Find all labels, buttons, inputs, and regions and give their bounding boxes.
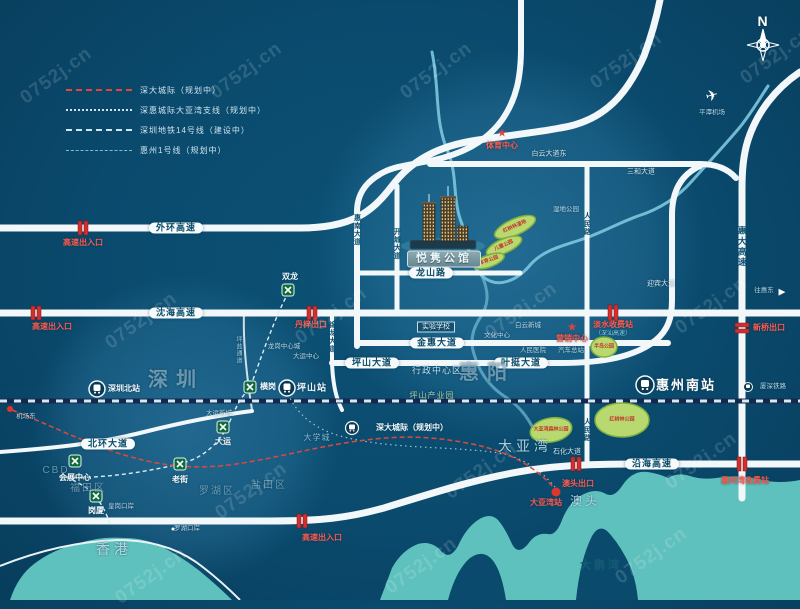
legend-label: 深大城际（规划中）: [140, 85, 221, 96]
star-icon-marketing-center: ★: [567, 323, 577, 334]
convention-center-label: 会展中心: [59, 474, 91, 482]
gangxia-label: 岗厦: [88, 507, 104, 515]
baiyun-ave-east-label: 白云大道东: [532, 151, 567, 158]
laojie-label: 老街: [172, 476, 188, 484]
bus-terminal-label: 汽车总站: [558, 348, 584, 355]
legend-row-huizhou-line1: 惠州1号线（规划中）: [66, 140, 266, 160]
jinhui-ave-label: 金惠大道: [410, 338, 464, 349]
xinqiao-exit-label: 新桥出口: [753, 324, 785, 332]
peoples-hospital-label: 人民医院: [520, 348, 546, 355]
road-huida-expressway: [742, 72, 800, 498]
sanhe-ave-label: 三和大道: [627, 169, 655, 176]
airport-east-label: 机场东: [16, 414, 36, 421]
park-label-peninsula: 半岛公园: [594, 345, 614, 350]
project-name-label: 悦隽公馆: [407, 251, 481, 268]
dapengwan-label: 大鹏湾: [580, 561, 622, 572]
shenzhen-label: 深圳: [148, 370, 204, 390]
dayawan-station-dot: [552, 488, 561, 497]
culture-center-label: 文化中心: [484, 333, 510, 340]
huanggang-port-label: 皇岗口岸: [108, 504, 134, 511]
longgang-center-label: 龙岗中心城: [268, 344, 301, 351]
shenzhen-north-station-label: 深圳北站: [108, 385, 140, 393]
renmin-rd-label-north: 人民路: [584, 212, 591, 236]
pingtan-airport-label: 平潭机场: [699, 110, 725, 117]
map-stage: 深大城际（规划中） 深惠城际大亚湾支线（规划中） 深圳地铁14号线（建设中） 惠…: [0, 0, 800, 600]
metro-icon-convention: [69, 455, 81, 467]
dayun-center-label: 大运中心: [293, 354, 319, 361]
arrow-up-icon: ▲: [517, 58, 526, 67]
yingbin-ave-label: 迎宾大道: [647, 281, 675, 288]
beihuan-ave-label: 北环大道: [81, 439, 135, 450]
shenshan-expwy-note: （深汕高速）: [595, 331, 631, 337]
longshan-rd-label: 龙山路: [409, 268, 453, 279]
legend-row-shenda-intercity: 深大城际（规划中）: [66, 80, 266, 100]
huiyang-label: 惠阳: [459, 363, 515, 383]
legend-label: 深惠城际大亚湾支线（规划中）: [140, 105, 266, 116]
danshui-toll-label: 淡水收费站: [593, 321, 633, 329]
experimental-school-label: 实验学校: [417, 322, 455, 333]
luohu-district-label: 罗湖区: [199, 487, 235, 497]
outer-ring-expwy-label: 外环高速: [149, 223, 203, 234]
pingshan-station-label: 坪山站: [297, 384, 327, 393]
legend-line-red-dashed-icon: [66, 89, 132, 91]
huizhouwan-toll-label: 惠州湾收费站: [721, 477, 769, 485]
jinlong-ave-label: 锦龙大道: [329, 321, 336, 353]
glow-shenzhen: [30, 275, 340, 585]
metro-icon-dayun: [217, 421, 229, 433]
baiyun-newtown-label: 白云新城: [515, 323, 541, 330]
kaicheng-ave-label: 开城大道: [394, 228, 401, 260]
danzi-exit-label: 丹梓出口: [295, 321, 327, 329]
north-label: N: [757, 14, 768, 28]
shenda-intercity-icon: [346, 422, 359, 435]
legend-label: 深圳地铁14号线（建设中）: [140, 125, 250, 136]
admin-center-label: 行政中心区: [412, 367, 462, 376]
airport-east-dot: [7, 406, 13, 412]
huizhou-south-station-label: 惠州南站: [656, 379, 716, 392]
futian-district-label: 福田区: [70, 484, 106, 494]
shuanglong-label: 双龙: [282, 273, 298, 281]
legend-line-dashed-icon: [66, 129, 132, 131]
huida-expwy-label: 惠大高速: [738, 226, 747, 268]
huizhou-south-station-icon: [636, 376, 654, 394]
dayawan-station-label: 大亚湾站: [530, 499, 562, 507]
yanhai-expwy-label: 沿海高速: [625, 459, 679, 470]
shihua-ave-label: 石化大道: [553, 449, 581, 456]
pingyan-rd-label: 坪盐通道: [235, 336, 241, 364]
legend: 深大城际（规划中） 深惠城际大亚湾支线（规划中） 深圳地铁14号线（建设中） 惠…: [66, 80, 266, 160]
university-town-label: 大学城: [304, 434, 331, 442]
park-label-dayawan-forest: 大亚湾森林公园: [533, 428, 568, 433]
aotou-label: 澳头: [570, 495, 600, 507]
metro-icon-shuanglong: [282, 284, 294, 296]
wetland-park-label: 湿地公园: [553, 207, 579, 214]
legend-label: 惠州1号线（规划中）: [140, 145, 226, 156]
dayawan-label: 大亚湾: [498, 439, 552, 453]
aotou-exit-label: 澳头出口: [562, 480, 594, 488]
pingshan-station-icon: [279, 380, 295, 396]
legend-line-dotted-icon: [66, 109, 132, 111]
legend-row-shenhui-branch: 深惠城际大亚湾支线（规划中）: [66, 100, 266, 120]
legend-row-metro14: 深圳地铁14号线（建设中）: [66, 120, 266, 140]
dayun-label: 大运: [215, 438, 231, 446]
metro-icon-henggang: [244, 381, 256, 393]
hongkong-label: 香港: [96, 542, 132, 556]
shenda-intercity-label: 深大城际（规划中）: [376, 424, 448, 432]
luohu-port-label: 罗湖口岸: [174, 526, 200, 533]
park-label-mangrove: 红树林公园: [609, 418, 634, 423]
pingshan-industrial-label: 坪山产业园: [410, 392, 455, 400]
exit-yanhai-west-label: 高速出入口: [302, 534, 342, 542]
xiashen-railway-icon: [744, 383, 753, 392]
henggang-label: 横岗: [260, 383, 276, 391]
compass-icon: [747, 29, 779, 61]
star-icon-sports-center: ★: [497, 129, 507, 140]
exit-shenhai-west-label: 高速出入口: [32, 323, 72, 331]
yantian-district-label: 盐田区: [251, 481, 287, 491]
xiashen-railway-label: 厦深铁路: [760, 384, 786, 391]
shenhai-expwy-label: 沈海高速: [149, 308, 203, 319]
pingshan-ave-label: 坪山大道: [345, 358, 399, 369]
marketing-center-label: 营销中心: [556, 335, 588, 343]
dayun-newtown-label: 大运新城: [206, 411, 232, 418]
metro-icon-laojie: [174, 458, 186, 470]
sports-center-label: 体育中心: [486, 142, 518, 150]
to-huidong-label: 往惠东: [754, 288, 774, 295]
arrow-right-icon: ▶: [779, 288, 786, 297]
renmin-rd-label-south: 人民路: [584, 418, 591, 442]
huinan-ave-label: 惠南大道: [354, 214, 361, 246]
shenzhen-north-station-icon: [89, 381, 105, 397]
legend-line-fine-dashed-icon: [66, 150, 132, 151]
exit-outer-ring-label: 高速出入口: [63, 239, 103, 247]
